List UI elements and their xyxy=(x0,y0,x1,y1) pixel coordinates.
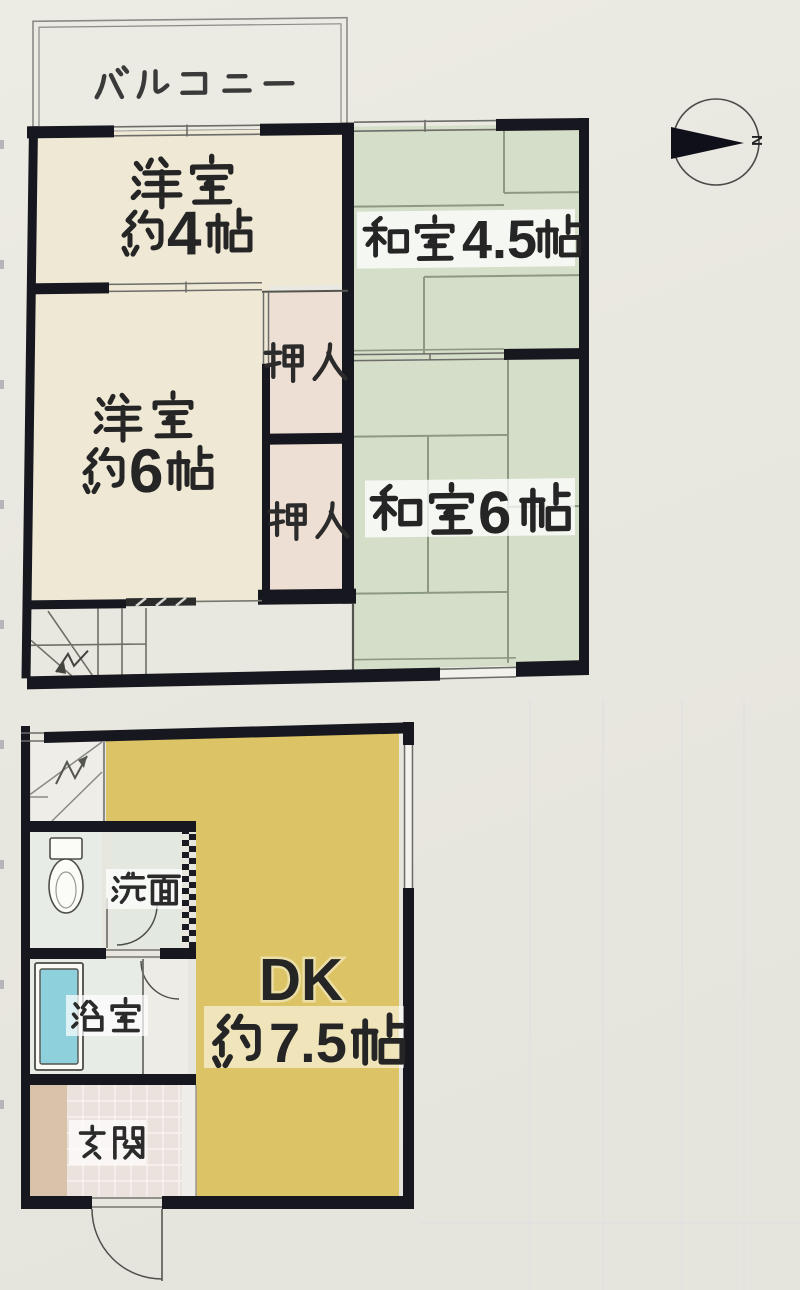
svg-text:6: 6 xyxy=(478,479,511,546)
svg-text:N: N xyxy=(748,135,765,146)
svg-text:4.5: 4.5 xyxy=(462,210,537,271)
svg-text:7.5: 7.5 xyxy=(269,1011,347,1074)
svg-text:DK: DK xyxy=(259,947,343,1013)
svg-text:4: 4 xyxy=(167,199,202,268)
svg-text:6: 6 xyxy=(129,437,163,506)
